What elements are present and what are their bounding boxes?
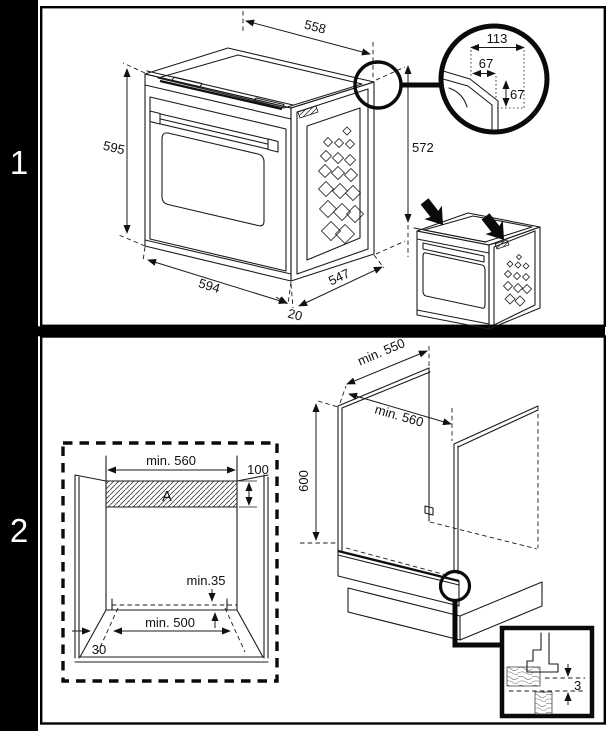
- step-2-number: 2: [10, 512, 28, 549]
- dim-foot-gap-label: 3: [574, 678, 581, 693]
- shelf-label: A: [162, 489, 172, 505]
- dim-corner-total-width: 113: [487, 31, 508, 46]
- dim-corner-inner-width: 67: [479, 56, 493, 71]
- installation-diagram: 1 2: [0, 0, 610, 731]
- panel-divider: [38, 326, 605, 336]
- dim-corner-inner-height: 67: [510, 87, 524, 102]
- dim-top-clearance-label: 100: [247, 462, 269, 477]
- dim-niche-width-label: min. 560: [146, 453, 196, 468]
- dim-rear-clearance-label: min.35: [186, 573, 225, 588]
- worktop-wood-section: [507, 667, 540, 686]
- installation-manual-page: 1 2: [0, 0, 610, 731]
- foot-gap-detail: 3: [502, 628, 592, 716]
- dim-height-label: 600: [296, 470, 311, 492]
- dim-plinth-recess-label: 30: [92, 642, 106, 657]
- dim-base-width-label: min. 500: [145, 615, 195, 630]
- plinth-wood-section: [535, 692, 552, 714]
- dim-rear-height-label: 572: [412, 140, 434, 155]
- step-index-sidebar: [0, 0, 38, 731]
- step-1-number: 1: [10, 144, 28, 181]
